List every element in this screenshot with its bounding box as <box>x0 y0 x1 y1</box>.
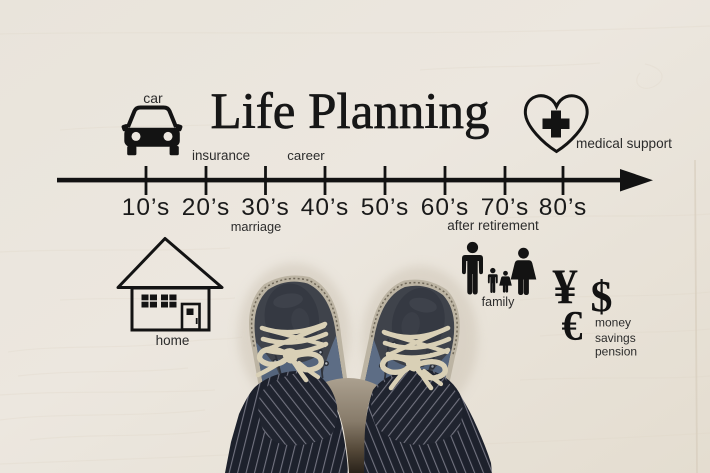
svg-text:$: $ <box>591 272 613 321</box>
svg-text:50’s: 50’s <box>361 194 410 221</box>
svg-text:Life Planning: Life Planning <box>210 84 489 140</box>
svg-text:20’s: 20’s <box>182 194 231 221</box>
svg-text:40’s: 40’s <box>301 194 350 221</box>
svg-text:70’s: 70’s <box>481 194 530 221</box>
svg-text:career: career <box>287 148 325 163</box>
svg-text:family: family <box>482 295 515 309</box>
svg-text:medical support: medical support <box>576 136 672 151</box>
svg-text:10’s: 10’s <box>122 194 171 221</box>
svg-text:car: car <box>143 90 163 106</box>
svg-text:80’s: 80’s <box>539 194 588 221</box>
svg-text:60’s: 60’s <box>421 194 470 221</box>
svg-text:marriage: marriage <box>231 219 282 234</box>
svg-text:after retirement: after retirement <box>447 218 539 233</box>
svg-text:€: € <box>562 304 583 350</box>
svg-text:home: home <box>156 333 190 348</box>
svg-text:insurance: insurance <box>192 148 250 163</box>
svg-text:pension: pension <box>595 345 637 359</box>
svg-text:savings: savings <box>595 331 636 345</box>
svg-text:30’s: 30’s <box>241 194 290 221</box>
